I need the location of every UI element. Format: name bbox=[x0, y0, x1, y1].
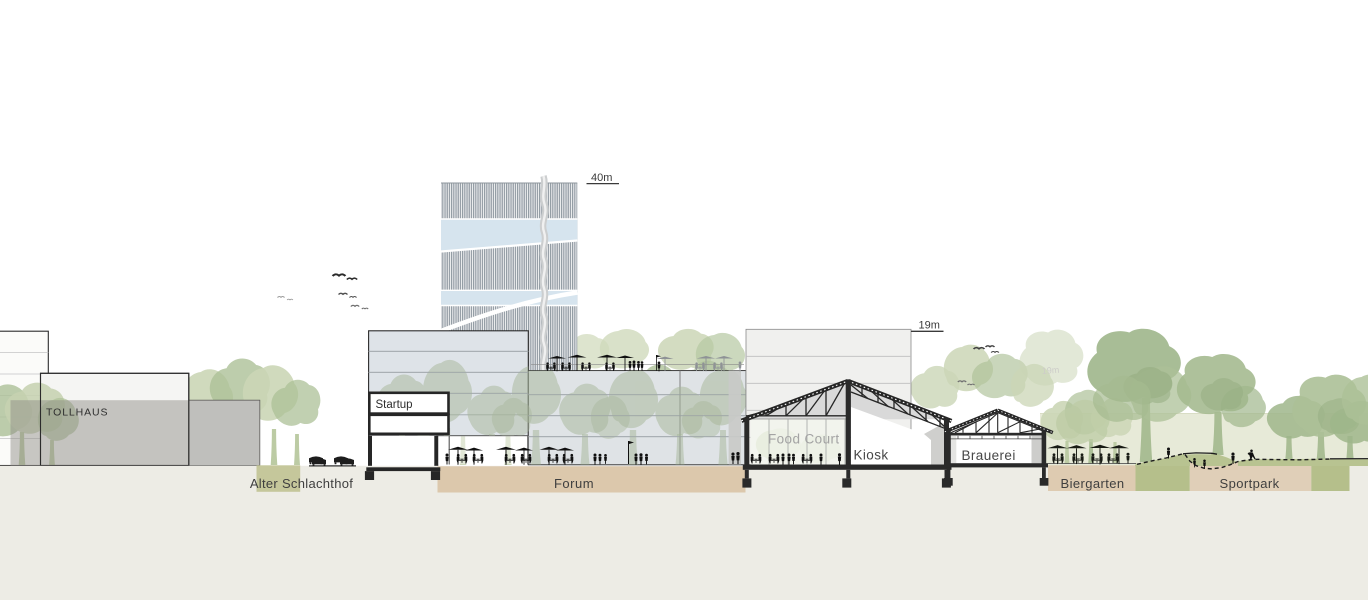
svg-text:TOLLHAUS: TOLLHAUS bbox=[46, 407, 108, 419]
svg-text:Kiosk: Kiosk bbox=[854, 448, 889, 463]
svg-text:19m: 19m bbox=[1041, 365, 1059, 376]
svg-text:Forum: Forum bbox=[554, 476, 594, 491]
svg-text:Brauerei: Brauerei bbox=[962, 448, 1016, 463]
svg-text:Alter Schlachthof: Alter Schlachthof bbox=[250, 476, 353, 491]
svg-text:Startup: Startup bbox=[376, 399, 413, 411]
svg-text:40m: 40m bbox=[591, 172, 612, 184]
svg-text:Sportpark: Sportpark bbox=[1220, 476, 1280, 491]
svg-text:19m: 19m bbox=[919, 320, 940, 332]
svg-text:Food Court: Food Court bbox=[768, 432, 840, 447]
svg-text:Biergarten: Biergarten bbox=[1061, 476, 1125, 491]
